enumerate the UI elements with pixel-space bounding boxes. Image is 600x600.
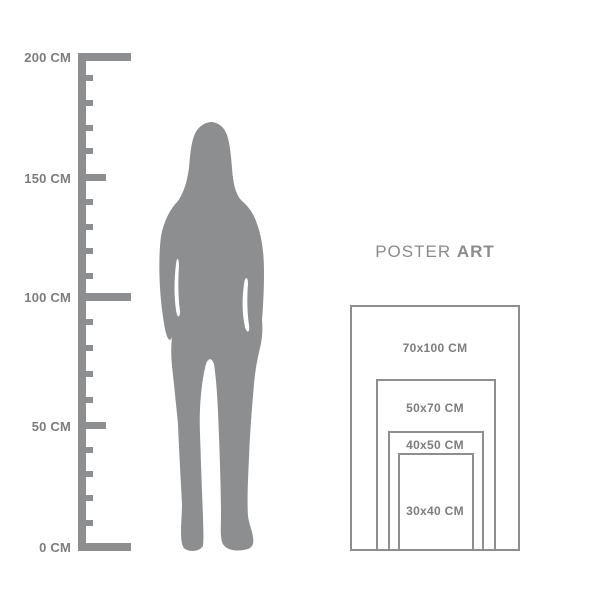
ruler-minor-tick [78, 447, 93, 453]
title-bold: ART [457, 242, 495, 261]
ruler-minor-tick [78, 520, 93, 526]
ruler-minor-tick [78, 125, 93, 131]
ruler-minor-tick [78, 345, 93, 351]
ruler-minor-tick [78, 371, 93, 377]
ruler-minor-tick [78, 319, 93, 325]
ruler-mid-tick [78, 422, 106, 429]
ruler-label-0: 0 CM [1, 540, 71, 555]
ruler-minor-tick [78, 273, 93, 279]
ruler-minor-tick [78, 148, 93, 154]
ruler-minor-tick [78, 75, 93, 81]
poster-size-label-30x40: 30x40 CM [350, 504, 520, 518]
size-guide-diagram: 200 CM 150 CM 100 CM 50 CM 0 CM POSTER A… [0, 0, 600, 600]
ruler-minor-tick [78, 495, 93, 501]
ruler-minor-tick [78, 397, 93, 403]
ruler-major-tick [78, 293, 131, 301]
ruler-minor-tick [78, 199, 93, 205]
ruler-minor-tick [78, 471, 93, 477]
ruler-mid-tick [78, 174, 106, 181]
ruler-minor-tick [78, 248, 93, 254]
ruler-label-150: 150 CM [1, 171, 71, 186]
ruler-minor-tick [78, 224, 93, 230]
poster-size-label-70x100: 70x100 CM [350, 341, 520, 355]
title-regular: POSTER [375, 242, 451, 261]
woman-silhouette-icon [157, 122, 267, 553]
ruler-major-tick [78, 53, 131, 61]
poster-size-label-50x70: 50x70 CM [350, 401, 520, 415]
ruler-label-50: 50 CM [1, 419, 71, 434]
ruler-label-200: 200 CM [1, 50, 71, 65]
ruler-label-100: 100 CM [1, 290, 71, 305]
poster-frame-30x40 [398, 453, 474, 551]
ruler-major-tick [78, 543, 131, 551]
poster-size-label-40x50: 40x50 CM [350, 438, 520, 452]
ruler-minor-tick [78, 100, 93, 106]
poster-art-title: POSTER ART [350, 242, 520, 262]
